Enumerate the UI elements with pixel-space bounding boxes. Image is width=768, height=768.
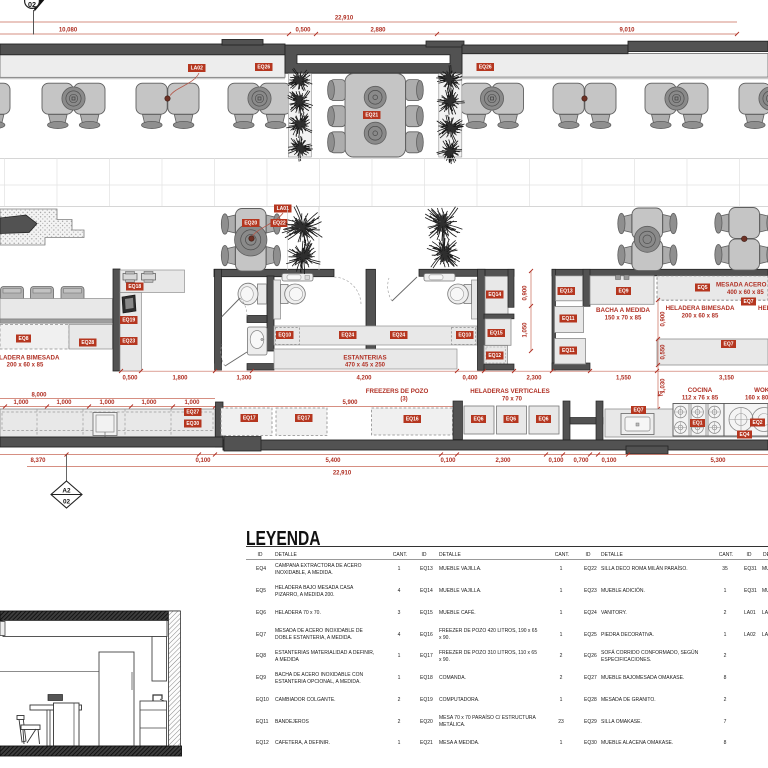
svg-text:EQ7: EQ7 <box>723 342 733 348</box>
svg-text:EQ30: EQ30 <box>186 421 199 427</box>
svg-text:5,900: 5,900 <box>342 400 358 406</box>
svg-text:470 x 45 x 250: 470 x 45 x 250 <box>345 363 386 369</box>
svg-text:1,000: 1,000 <box>56 400 72 406</box>
svg-text:0,100: 0,100 <box>548 458 564 464</box>
svg-text:22,910: 22,910 <box>333 471 352 477</box>
svg-text:EQ10: EQ10 <box>458 333 471 339</box>
svg-text:EQ1: EQ1 <box>692 421 702 427</box>
svg-text:EQ12: EQ12 <box>488 353 501 359</box>
svg-text:0,500: 0,500 <box>122 376 138 382</box>
svg-text:EQ20: EQ20 <box>244 221 257 227</box>
svg-text:EQ5: EQ5 <box>697 285 707 291</box>
svg-text:COCINA: COCINA <box>688 387 713 394</box>
svg-text:160 x 80 x: 160 x 80 x <box>745 396 768 402</box>
svg-text:EQ28: EQ28 <box>81 340 94 346</box>
svg-text:EQ27: EQ27 <box>186 410 199 416</box>
svg-text:EQ6: EQ6 <box>473 417 483 423</box>
svg-text:EQ6: EQ6 <box>506 417 516 423</box>
svg-text:3,150: 3,150 <box>719 376 735 382</box>
svg-text:1,000: 1,000 <box>99 400 115 406</box>
svg-text:9,010: 9,010 <box>619 28 635 34</box>
svg-text:EQ16: EQ16 <box>406 417 419 423</box>
svg-text:EQ22: EQ22 <box>273 221 286 227</box>
svg-text:2,880: 2,880 <box>370 28 386 34</box>
svg-text:EQ24: EQ24 <box>392 333 405 339</box>
svg-text:EQ14: EQ14 <box>488 292 501 298</box>
svg-text:5,400: 5,400 <box>325 458 341 464</box>
svg-text:112 x 76 x 85: 112 x 76 x 85 <box>682 396 719 402</box>
svg-text:EQ18: EQ18 <box>128 284 141 290</box>
svg-text:HELADERA BIMESADA: HELADERA BIMESADA <box>0 355 60 362</box>
svg-text:WOKER: WOKER <box>754 387 768 394</box>
svg-text:(3): (3) <box>400 397 407 403</box>
svg-text:2,300: 2,300 <box>526 376 542 382</box>
svg-text:200 x 60 x 85: 200 x 60 x 85 <box>7 363 44 369</box>
svg-text:HELADERAS VERTICALES: HELADERAS VERTICALES <box>470 388 549 395</box>
svg-text:400 x 60 x 85: 400 x 60 x 85 <box>727 290 764 296</box>
svg-text:EQ7: EQ7 <box>633 408 643 414</box>
svg-text:8,000: 8,000 <box>31 393 47 399</box>
svg-text:EQ17: EQ17 <box>243 416 256 422</box>
svg-text:0,400: 0,400 <box>462 376 478 382</box>
svg-text:1,000: 1,000 <box>13 400 29 406</box>
svg-text:1,000: 1,000 <box>141 400 157 406</box>
svg-text:BACHA A MEDIDA: BACHA A MEDIDA <box>596 307 650 314</box>
svg-text:22,910: 22,910 <box>335 16 354 22</box>
svg-text:EQ19: EQ19 <box>122 318 135 324</box>
svg-text:EQ13: EQ13 <box>560 289 573 295</box>
svg-text:5,300: 5,300 <box>710 458 726 464</box>
svg-text:EQ24: EQ24 <box>341 333 354 339</box>
svg-text:LA02: LA02 <box>191 66 203 72</box>
svg-text:EQ4: EQ4 <box>739 432 749 438</box>
svg-text:HELADERA BIMESADA: HELADERA BIMESADA <box>666 305 735 312</box>
svg-text:1,050: 1,050 <box>523 322 529 338</box>
svg-text:10,080: 10,080 <box>59 28 78 34</box>
svg-text:EQ8: EQ8 <box>18 336 28 342</box>
svg-text:EQ11: EQ11 <box>562 316 575 322</box>
svg-text:EQ17: EQ17 <box>297 416 310 422</box>
svg-text:0,900: 0,900 <box>523 285 529 301</box>
svg-text:0,500: 0,500 <box>295 28 311 34</box>
svg-text:0,100: 0,100 <box>195 458 211 464</box>
svg-text:200 x 60 x 85: 200 x 60 x 85 <box>682 314 719 320</box>
svg-text:EQ21: EQ21 <box>365 113 378 119</box>
svg-text:2,300: 2,300 <box>495 458 511 464</box>
svg-text:EQ11: EQ11 <box>562 348 575 354</box>
svg-text:HEL: HEL <box>758 305 768 312</box>
svg-text:0,700: 0,700 <box>573 458 589 464</box>
svg-text:1,000: 1,000 <box>184 400 200 406</box>
svg-text:0,900: 0,900 <box>661 311 667 327</box>
svg-text:0,100: 0,100 <box>440 458 456 464</box>
svg-text:EQ23: EQ23 <box>122 339 135 345</box>
svg-text:8,370: 8,370 <box>30 458 46 464</box>
svg-text:0,550: 0,550 <box>661 344 667 360</box>
svg-text:EQ6: EQ6 <box>538 417 548 423</box>
svg-text:MESADA ACERO IN: MESADA ACERO IN <box>716 282 768 289</box>
svg-text:150 x 70 x 85: 150 x 70 x 85 <box>605 316 642 322</box>
svg-text:EQ26: EQ26 <box>257 65 270 71</box>
svg-text:EQ10: EQ10 <box>278 333 291 339</box>
svg-text:1,300: 1,300 <box>236 376 252 382</box>
svg-text:FREEZERS DE POZO: FREEZERS DE POZO <box>366 388 429 395</box>
svg-text:02: 02 <box>63 499 71 506</box>
svg-text:A2: A2 <box>62 488 71 495</box>
svg-text:1,550: 1,550 <box>616 376 632 382</box>
svg-text:1,800: 1,800 <box>172 376 188 382</box>
svg-text:EQ7: EQ7 <box>743 299 753 305</box>
svg-text:70 x 70: 70 x 70 <box>502 397 523 403</box>
svg-text:4,200: 4,200 <box>356 376 372 382</box>
svg-text:EQ15: EQ15 <box>490 331 503 337</box>
svg-text:EQ2: EQ2 <box>752 420 762 426</box>
svg-text:ESTANTERIAS: ESTANTERIAS <box>343 355 386 362</box>
svg-text:0,100: 0,100 <box>601 458 617 464</box>
svg-text:02: 02 <box>28 0 36 9</box>
svg-text:EQ26: EQ26 <box>479 65 492 71</box>
svg-text:EQ9: EQ9 <box>618 289 628 295</box>
